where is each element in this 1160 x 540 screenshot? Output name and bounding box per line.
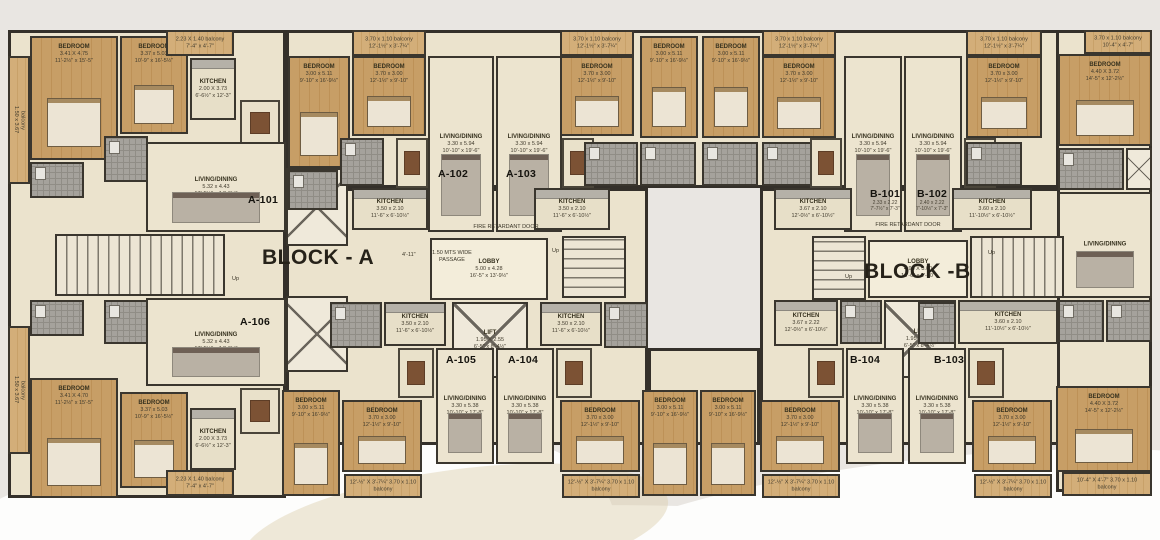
room-label-line: 11'-6" x 6'-10½" <box>537 213 607 220</box>
room-toilet <box>1058 300 1104 342</box>
room-label: BEDROOM3.00 x 5.119'-10" x 16'-9½" <box>705 44 757 64</box>
room-label-line: 3.30 x 5.94 <box>431 141 491 148</box>
room-label: BEDROOM3.70 x 3.0012'-1½" x 9'-10" <box>969 64 1039 84</box>
room-kitchen: KITCHEN2.00 X 3.736'-6½" x 12'-3" <box>190 58 236 120</box>
room-toilet <box>1058 148 1124 190</box>
room-bedroom: BEDROOM3.70 x 3.0012'-1½" x 9'-10" <box>966 56 1042 138</box>
room-balcony: balcony1.50 x 3.67 <box>8 56 30 184</box>
room-label-line: 14'-5" x 12'-2½" <box>1061 76 1149 83</box>
room-label-line: BEDROOM <box>355 64 423 71</box>
room-label-line: 3.30 x 5.38 <box>439 403 491 410</box>
room-label-line: 3.70 x 3.00 <box>355 71 423 78</box>
room-label-line: 11'-6" x 6'-10½" <box>543 328 599 335</box>
room-label: KITCHEN3.50 x 2.1011'-6" x 6'-10½" <box>537 199 607 219</box>
room-label-line: LIVING/DINING <box>149 177 283 184</box>
room-label-line: KITCHEN <box>193 429 233 436</box>
room-label: BEDROOM4.40 X 3.7214'-5" x 12'-2½" <box>1059 394 1149 414</box>
room-bedroom: BEDROOM3.70 x 3.0012'-1½" x 9'-10" <box>560 400 640 472</box>
room-label-line: BEDROOM <box>291 64 347 71</box>
room-label-line: 1.95 X 2.55 <box>455 337 525 344</box>
room-kitchen: KITCHEN3.50 x 2.1011'-6" x 6'-10½" <box>384 302 446 346</box>
room-label: KITCHEN3.67 x 2.2212'-0½" x 6'-10½" <box>777 313 835 333</box>
room-label-line: 3.00 x 5.11 <box>643 51 695 58</box>
room-label: balcony1.50 x 3.67 <box>12 62 25 178</box>
room-label-line: 12'-½" X 3'-7¼" 3.70 x 1.10 <box>765 479 837 486</box>
room-balcony: 3.70 x 1.10 balcony12'-1½" x 3'-7¼" <box>352 30 426 56</box>
room-label-line: 9'-10" x 16'-9½" <box>291 78 347 85</box>
room-label-line: 12'-0½" x 6'-10½" <box>777 327 835 334</box>
room-label: BEDROOM3.70 x 3.0012'-1½" x 9'-10" <box>563 64 631 84</box>
room-label-line: 2.23 X 1.40 balcony <box>169 476 231 483</box>
room-label-line: 3.70 x 3.00 <box>563 415 637 422</box>
room-label-line: 3.70 x 3.00 <box>345 415 419 422</box>
room-living: LIVING/DINING3.30 x 5.9410'-10" x 19'-6" <box>428 56 494 232</box>
room-label-line: KITCHEN <box>955 199 1029 206</box>
room-label: KITCHEN3.50 x 2.1011'-6" x 6'-10½" <box>387 314 443 334</box>
room-label-line: LIVING/DINING <box>1061 241 1149 248</box>
room-label: LIVING/DINING3.30 x 5.3810'-10" x 17'-8" <box>849 396 901 416</box>
room-label-line: BEDROOM <box>563 64 631 71</box>
room-label-line: 12'-1½" x 3'-7¼" <box>563 43 631 50</box>
room-bedroom: BEDROOM3.70 x 3.0012'-1½" x 9'-10" <box>560 56 634 136</box>
room-label-line: BEDROOM <box>123 400 185 407</box>
room-label-line: 1.50 x 3.67 <box>12 332 19 448</box>
room-bedroom: BEDROOM4.40 X 3.7214'-5" x 12'-2½" <box>1056 386 1152 472</box>
room-living: LIVING/DINING3.30 x 5.3810'-10" x 17'-8" <box>908 348 966 464</box>
room-dining <box>240 100 280 146</box>
room-label-line: 5.32 x 4.43 <box>149 184 283 191</box>
room-label-line: LOBBY <box>433 259 545 266</box>
room-label-line: 3.30 x 5.38 <box>911 403 963 410</box>
room-label-line: 12'-1½" x 3'-7¼" <box>355 43 423 50</box>
room-label: KITCHEN2.00 X 3.736'-6½" x 12'-3" <box>193 429 233 449</box>
floor-plan: balcony1.50 x 3.67BEDROOM3.41 X 4.7511'-… <box>0 0 1160 540</box>
room-label-line: BEDROOM <box>33 44 115 51</box>
room-label: BEDROOM3.70 x 3.0012'-1½" x 9'-10" <box>975 408 1049 428</box>
room-balcony: 3.70 x 1.10 balcony10'-4" x 4'-7" <box>1084 30 1152 54</box>
room-label-line: 2.00 X 3.73 <box>193 436 233 443</box>
room-bedroom: BEDROOM3.00 x 5.119'-10" x 16'-9½" <box>700 390 756 496</box>
room-label: BEDROOM3.00 x 5.119'-10" x 16'-9½" <box>643 44 695 64</box>
room-dining <box>240 388 280 434</box>
room-label: BEDROOM3.41 X 4.7511'-2½" x 15'-5" <box>33 44 115 64</box>
room-living: LIVING/DINING <box>1058 192 1152 298</box>
room-label-line: balcony <box>565 486 637 493</box>
room-bedroom: BEDROOM3.70 x 3.0012'-1½" x 9'-10" <box>762 56 836 138</box>
room-label-line: 2.23 X 1.40 balcony <box>169 36 231 43</box>
room-toilet <box>584 142 638 186</box>
room-label-line: 10'-9" x 16'-5½" <box>123 58 185 65</box>
block-b-title: BLOCK -B <box>864 260 971 284</box>
room-label-line: balcony <box>765 486 837 493</box>
room-label: LIVING/DINING3.30 x 5.9410'-10" x 19'-6" <box>431 134 491 154</box>
room-label-line: KITCHEN <box>777 313 835 320</box>
room-label-line: 3.30 x 5.38 <box>499 403 551 410</box>
room-label: KITCHEN3.50 x 2.1011'-6" x 6'-10½" <box>355 199 425 219</box>
room-toilet <box>340 138 384 186</box>
room-label-line: 10'-10" x 19'-6" <box>431 148 491 155</box>
room-label-line: 3.70 x 1.10 balcony <box>969 36 1039 43</box>
room-toilet <box>840 300 882 344</box>
room-living: LIVING/DINING5.32 x 4.4317'-5½" x 14'-6½… <box>146 298 286 386</box>
room-balcony: 12'-½" X 3'-7¼" 3.70 x 1.10balcony <box>562 474 640 498</box>
room-label-line: 10'-10" x 19'-6" <box>907 148 959 155</box>
room-label: BEDROOM3.70 x 3.0012'-1½" x 9'-10" <box>355 64 423 84</box>
room-label-line: 12'-1½" x 3'-7¼" <box>765 43 833 50</box>
room-label-line: BEDROOM <box>763 408 837 415</box>
room-label-line: LIVING/DINING <box>849 396 901 403</box>
room-living: LIVING/DINING3.30 x 5.3810'-10" x 17'-8" <box>496 348 554 464</box>
room-label-line: BEDROOM <box>705 44 757 51</box>
room-label-line: 11'-6" x 6'-10½" <box>355 213 425 220</box>
room-toilet <box>918 302 956 344</box>
room-label-line: BEDROOM <box>1059 394 1149 401</box>
room-label-line: LIFT <box>455 330 525 337</box>
room-label-line: 5.00 x 4.28 <box>433 266 545 273</box>
room-label-line: 7'-4" x 4'-7" <box>169 43 231 50</box>
block-a-title: BLOCK - A <box>262 246 374 270</box>
room-balcony: 2.23 X 1.40 balcony7'-4" x 4'-7" <box>166 30 234 56</box>
room-label: 3.70 x 1.10 balcony12'-1½" x 3'-7¼" <box>969 36 1039 49</box>
room-bedroom: BEDROOM3.70 x 3.0012'-1½" x 9'-10" <box>760 400 840 472</box>
room-kitchen: KITCHEN3.50 x 2.1011'-6" x 6'-10½" <box>352 188 428 230</box>
room-bedroom: BEDROOM3.00 x 5.119'-10" x 16'-9½" <box>702 36 760 138</box>
room-toilet <box>30 300 84 336</box>
room-label-line: BEDROOM <box>645 398 695 405</box>
room-label: LIVING/DINING3.30 x 5.3810'-10" x 17'-8" <box>911 396 963 416</box>
room-label: LIVING/DINING3.30 x 5.9410'-10" x 19'-6" <box>847 134 899 154</box>
room-kitchen: KITCHEN3.50 x 2.1011'-6" x 6'-10½" <box>534 188 610 230</box>
room-bedroom: BEDROOM3.70 x 3.0012'-1½" x 9'-10" <box>342 400 422 472</box>
room-toilet <box>640 142 696 186</box>
room-label-line: 10'-4" x 4'-7" <box>1087 42 1149 49</box>
room-balcony: 12'-½" X 3'-7¼" 3.70 x 1.10balcony <box>344 474 422 498</box>
room-label-line: LIVING/DINING <box>907 134 959 141</box>
room-label: 3.70 x 1.10 balcony12'-1½" x 3'-7¼" <box>765 36 833 49</box>
room-kitchen: KITCHEN3.67 x 2.1012'-0½" x 6'-10½" <box>774 188 852 230</box>
room-label: 3.70 x 1.10 balcony12'-1½" x 3'-7¼" <box>563 36 631 49</box>
room-label-line: 3.00 x 5.11 <box>285 405 337 412</box>
room-label-line: KITCHEN <box>537 199 607 206</box>
room-living: LIVING/DINING5.32 x 4.4317'-5½" x 14'-6½… <box>146 142 286 232</box>
room-label-line: BEDROOM <box>643 44 695 51</box>
room-label-line: LIVING/DINING <box>499 134 559 141</box>
room-label: BEDROOM3.70 x 3.0012'-1½" x 9'-10" <box>763 408 837 428</box>
room-label-line: 3.00 x 5.11 <box>703 405 753 412</box>
room-label-line: 3.70 x 3.00 <box>765 71 833 78</box>
room-label-line: 9'-10" x 16'-9½" <box>705 58 757 65</box>
room-balcony: 3.70 x 1.10 balcony12'-1½" x 3'-7¼" <box>966 30 1042 56</box>
room-label-line: balcony <box>19 62 26 178</box>
room-dining <box>808 348 844 398</box>
room-label-line: 12'-1½" x 9'-10" <box>345 422 419 429</box>
room-label-line: LIVING/DINING <box>911 396 963 403</box>
room-label-line: KITCHEN <box>543 314 599 321</box>
room-toilet <box>702 142 758 186</box>
room-label-line: 12'-½" X 3'-7¼" 3.70 x 1.10 <box>565 479 637 486</box>
room-label-line: 10'-9" x 16'-5½" <box>123 414 185 421</box>
room-label-line: 10'-10" x 19'-6" <box>847 148 899 155</box>
room-label-line: 11'-10½" x 6'-10½" <box>961 326 1055 333</box>
room-label: balcony1.50 x 3.67 <box>12 332 25 448</box>
room-label-line: 3.60 x 2.10 <box>961 319 1055 326</box>
room-label-line: 9'-10" x 16'-9½" <box>703 412 753 419</box>
room-label-line: 3.00 x 5.11 <box>645 405 695 412</box>
room-bedroom: BEDROOM3.70 x 3.0012'-1½" x 9'-10" <box>352 56 426 136</box>
room-label: LOBBY5.00 x 4.2816'-5" x 13'-9½" <box>433 259 545 279</box>
room-lobby: LOBBY5.00 x 4.2816'-5" x 13'-9½" <box>430 238 548 300</box>
room-label-line: LIVING/DINING <box>431 134 491 141</box>
room-toilet <box>288 170 338 210</box>
room-label-line: balcony <box>347 486 419 493</box>
room-dining <box>398 348 434 398</box>
room-label-line: 4.40 X 3.72 <box>1061 69 1149 76</box>
room-label-line: 3.70 x 1.10 balcony <box>1087 35 1149 42</box>
room-label-line: 16'-5" x 13'-9½" <box>433 273 545 280</box>
room-label-line: 9'-10" x 16'-9½" <box>643 58 695 65</box>
room-dining <box>396 138 428 188</box>
room-label-line: 6'-6½" x 12'-3" <box>193 93 233 100</box>
room-label-line: 17'-5½" x 14'-6½" <box>149 346 283 353</box>
room-label-line: KITCHEN <box>355 199 425 206</box>
room-label: KITCHEN3.67 x 2.1012'-0½" x 6'-10½" <box>777 199 849 219</box>
room-label-line: LIVING/DINING <box>499 396 551 403</box>
room-balcony: 12'-½" X 3'-7¼" 3.70 x 1.10balcony <box>762 474 840 498</box>
room-label: BEDROOM3.70 x 3.0012'-1½" x 9'-10" <box>345 408 419 428</box>
room-label: BEDROOM3.70 x 3.0012'-1½" x 9'-10" <box>765 64 833 84</box>
room-stair-v <box>562 236 626 298</box>
room-living: LIVING/DINING3.30 x 5.3810'-10" x 17'-8" <box>436 348 494 464</box>
room-label-line: 11'-2½" x 15'-5" <box>33 58 115 65</box>
room-label-line: 9'-10" x 16'-9½" <box>285 412 337 419</box>
room-label: BEDROOM3.00 x 5.119'-10" x 16'-9½" <box>291 64 347 84</box>
room-label-line: KITCHEN <box>961 312 1055 319</box>
room-label: BEDROOM3.41 X 4.7011'-2½" x 15'-5" <box>33 386 115 406</box>
room-label-line: 7'-4" x 4'-7" <box>169 483 231 490</box>
room-label: LIVING/DINING <box>1061 241 1149 248</box>
room-label-line: 14'-5" x 12'-2½" <box>1059 408 1149 415</box>
room-label-line: LIVING/DINING <box>149 332 283 339</box>
room-kitchen: KITCHEN3.67 x 2.2212'-0½" x 6'-10½" <box>774 300 838 346</box>
room-label: BEDROOM3.00 x 5.119'-10" x 16'-9½" <box>285 398 337 418</box>
room-label-line: 10'-10" x 17'-8" <box>911 410 963 417</box>
room-label-line: KITCHEN <box>193 79 233 86</box>
room-label-line: 12'-½" X 3'-7¼" 3.70 x 1.10 <box>347 479 419 486</box>
room-label-line: 10'-10" x 17'-8" <box>439 410 491 417</box>
room-balcony: 10'-4" X 4'-7" 3.70 x 1.10balcony <box>1062 472 1152 496</box>
room-dining <box>968 348 1004 398</box>
room-label-line: 9'-10" x 16'-9½" <box>645 412 695 419</box>
room-label-line: LIVING/DINING <box>439 396 491 403</box>
room-label-line: 3.30 x 5.94 <box>499 141 559 148</box>
room-label: LIVING/DINING5.32 x 4.4317'-5½" x 14'-6½… <box>149 332 283 352</box>
room-label: 3.70 x 1.10 balcony12'-1½" x 3'-7¼" <box>355 36 423 49</box>
room-label-line: 12'-1½" x 9'-10" <box>765 78 833 85</box>
room-kitchen: KITCHEN3.60 x 2.1011'-10½" x 6'-10½" <box>952 188 1032 230</box>
room-label-line: 3.30 x 5.94 <box>847 141 899 148</box>
room-lift <box>1126 148 1152 190</box>
room-kitchen: KITCHEN2.00 X 3.736'-6½" x 12'-3" <box>190 408 236 470</box>
room-label: LIVING/DINING3.30 x 5.3810'-10" x 17'-8" <box>439 396 491 416</box>
room-living: LIVING/DINING3.30 x 5.3810'-10" x 17'-8" <box>846 348 904 464</box>
room-label-line: 3.30 x 5.38 <box>849 403 901 410</box>
room-bedroom: BEDROOM3.00 x 5.119'-10" x 16'-9½" <box>642 390 698 496</box>
room-label-line: 3.50 x 2.10 <box>543 321 599 328</box>
room-label-line: 3.70 x 3.00 <box>975 415 1049 422</box>
room-label: LIVING/DINING3.30 x 5.3810'-10" x 17'-8" <box>499 396 551 416</box>
room-label: BEDROOM4.40 X 3.7214'-5" x 12'-2½" <box>1061 62 1149 82</box>
room-kitchen: KITCHEN3.50 x 2.1011'-6" x 6'-10½" <box>540 302 602 346</box>
room-balcony: 3.70 x 1.10 balcony12'-1½" x 3'-7¼" <box>762 30 836 56</box>
room-label-line: 3.50 x 2.10 <box>387 321 443 328</box>
room-label-line: 2.00 X 3.73 <box>193 86 233 93</box>
room-kitchen: KITCHEN3.60 x 2.1011'-10½" x 6'-10½" <box>958 300 1058 344</box>
room-label-line: 3.00 x 5.11 <box>705 51 757 58</box>
room-label: LIVING/DINING3.30 x 5.9410'-10" x 19'-6" <box>499 134 559 154</box>
room-label-line: 10'-10" x 17'-8" <box>849 410 901 417</box>
room-label-line: 3.67 x 2.22 <box>777 320 835 327</box>
room-label-line: 12'-0½" x 6'-10½" <box>777 213 849 220</box>
room-toilet <box>104 136 148 182</box>
room-label-line: 11'-2½" x 15'-5" <box>33 400 115 407</box>
room-bedroom: BEDROOM3.70 x 3.0012'-1½" x 9'-10" <box>972 400 1052 472</box>
room-label-line: 3.70 x 1.10 balcony <box>765 36 833 43</box>
room-label-line: 3.50 x 2.10 <box>355 206 425 213</box>
room-label-line: BEDROOM <box>345 408 419 415</box>
room-balcony: balcony1.50 x 3.67 <box>8 326 30 454</box>
room-label-line: 3.60 x 2.10 <box>955 206 1029 213</box>
room-label: KITCHEN3.60 x 2.1011'-10½" x 6'-10½" <box>961 312 1055 332</box>
room-label-line: 3.37 x 5.03 <box>123 407 185 414</box>
room-label-line: 17'-5½" x 14'-6½" <box>149 191 283 198</box>
room-label-line: BEDROOM <box>969 64 1039 71</box>
room-label-line: 3.41 X 4.75 <box>33 51 115 58</box>
room-toilet <box>30 162 84 198</box>
room-label-line: 10'-4" X 4'-7" 3.70 x 1.10 <box>1065 477 1149 484</box>
room-label-line: BEDROOM <box>975 408 1049 415</box>
room-bedroom: BEDROOM3.41 X 4.7011'-2½" x 15'-5" <box>30 378 118 498</box>
room-label-line: BEDROOM <box>703 398 753 405</box>
room-label: 12'-½" X 3'-7¼" 3.70 x 1.10balcony <box>765 479 837 492</box>
room-label-line: 3.70 x 3.00 <box>763 415 837 422</box>
room-label-line: 3.00 x 5.11 <box>291 71 347 78</box>
room-bedroom: BEDROOM4.40 X 3.7214'-5" x 12'-2½" <box>1058 54 1152 146</box>
room-label-line: balcony <box>19 332 26 448</box>
room-label-line: 11'-10½" x 6'-10½" <box>955 213 1029 220</box>
room-stair-h <box>970 236 1064 298</box>
room-label-line: 12'-1½" x 9'-10" <box>969 78 1039 85</box>
room-label-line: BEDROOM <box>563 408 637 415</box>
room-label: 12'-½" X 3'-7¼" 3.70 x 1.10balcony <box>977 479 1049 492</box>
room-label-line: 10'-10" x 19'-6" <box>499 148 559 155</box>
room-label-line: balcony <box>977 486 1049 493</box>
room-label-line: 12'-1½" x 9'-10" <box>763 422 837 429</box>
room-label: BEDROOM3.37 x 5.0310'-9" x 16'-5½" <box>123 400 185 420</box>
room-toilet <box>104 300 148 344</box>
room-label-line: 6'-6½" x 12'-3" <box>193 443 233 450</box>
room-label-line: balcony <box>1065 484 1149 491</box>
room-label-line: 3.70 x 1.10 balcony <box>355 36 423 43</box>
room-label-line: 12'-1½" x 9'-10" <box>563 78 631 85</box>
room-balcony: 2.23 X 1.40 balcony7'-4" x 4'-7" <box>166 470 234 496</box>
room-label-line: KITCHEN <box>777 199 849 206</box>
room-label: KITCHEN3.60 x 2.1011'-10½" x 6'-10½" <box>955 199 1029 219</box>
room-dining <box>556 348 592 398</box>
room-label: 12'-½" X 3'-7¼" 3.70 x 1.10balcony <box>347 479 419 492</box>
room-label-line: 4.40 X 3.72 <box>1059 401 1149 408</box>
room-label: LIVING/DINING3.30 x 5.9410'-10" x 19'-6" <box>907 134 959 154</box>
room-label-line: BEDROOM <box>765 64 833 71</box>
room-label: 3.70 x 1.10 balcony10'-4" x 4'-7" <box>1087 35 1149 48</box>
room-label-line: BEDROOM <box>285 398 337 405</box>
room-label-line: 1.50 x 3.67 <box>12 62 19 178</box>
room-toilet <box>1106 300 1152 342</box>
room-label: BEDROOM3.00 x 5.119'-10" x 16'-9½" <box>703 398 753 418</box>
room-balcony: 3.70 x 1.10 balcony12'-1½" x 3'-7¼" <box>560 30 634 56</box>
room-label-line: LIVING/DINING <box>847 134 899 141</box>
room-label-line: 3.70 x 3.00 <box>563 71 631 78</box>
room-label: BEDROOM3.70 x 3.0012'-1½" x 9'-10" <box>563 408 637 428</box>
room-dining <box>810 138 842 188</box>
room-label: 2.23 X 1.40 balcony7'-4" x 4'-7" <box>169 476 231 489</box>
room-label-line: 12'-1½" x 9'-10" <box>563 422 637 429</box>
room-label: KITCHEN2.00 X 3.736'-6½" x 12'-3" <box>193 79 233 99</box>
room-label: 12'-½" X 3'-7¼" 3.70 x 1.10balcony <box>565 479 637 492</box>
room-label-line: 12'-1½" x 9'-10" <box>975 422 1049 429</box>
room-label-line: BEDROOM <box>1061 62 1149 69</box>
room-label-line: KITCHEN <box>387 314 443 321</box>
room-label-line: 3.50 x 2.10 <box>537 206 607 213</box>
room-label-line: 5.32 x 4.43 <box>149 339 283 346</box>
room-label-line: BEDROOM <box>33 386 115 393</box>
room-label-line: 3.70 x 3.00 <box>969 71 1039 78</box>
room-label-line: 12'-1½" x 3'-7¼" <box>969 43 1039 50</box>
room-toilet <box>966 142 1022 186</box>
room-bedroom: BEDROOM3.00 x 5.119'-10" x 16'-9½" <box>282 390 340 496</box>
room-bedroom: BEDROOM3.00 x 5.119'-10" x 16'-9½" <box>640 36 698 138</box>
room-toilet <box>330 302 382 348</box>
room-label: BEDROOM3.00 x 5.119'-10" x 16'-9½" <box>645 398 695 418</box>
room-label-line: 12'-1½" x 9'-10" <box>355 78 423 85</box>
room-label-line: 3.41 X 4.70 <box>33 393 115 400</box>
room-stair-h <box>55 234 225 296</box>
room-label-line: 11'-6" x 6'-10½" <box>387 328 443 335</box>
room-label-line: 12'-½" X 3'-7¼" 3.70 x 1.10 <box>977 479 1049 486</box>
room-toilet <box>604 302 648 348</box>
room-balcony: 12'-½" X 3'-7¼" 3.70 x 1.10balcony <box>974 474 1052 498</box>
room-label: 10'-4" X 4'-7" 3.70 x 1.10balcony <box>1065 477 1149 490</box>
room-label-line: 10'-10" x 17'-8" <box>499 410 551 417</box>
room-label-line: 3.70 x 1.10 balcony <box>563 36 631 43</box>
room-living: LIVING/DINING3.30 x 5.9410'-10" x 19'-6" <box>844 56 902 232</box>
room-label: LIVING/DINING5.32 x 4.4317'-5½" x 14'-6½… <box>149 177 283 197</box>
room-label: KITCHEN3.50 x 2.1011'-6" x 6'-10½" <box>543 314 599 334</box>
room-label-line: 3.30 x 5.94 <box>907 141 959 148</box>
room-stair-v <box>812 236 866 300</box>
room-label-line: 3.67 x 2.10 <box>777 206 849 213</box>
room-label: 2.23 X 1.40 balcony7'-4" x 4'-7" <box>169 36 231 49</box>
